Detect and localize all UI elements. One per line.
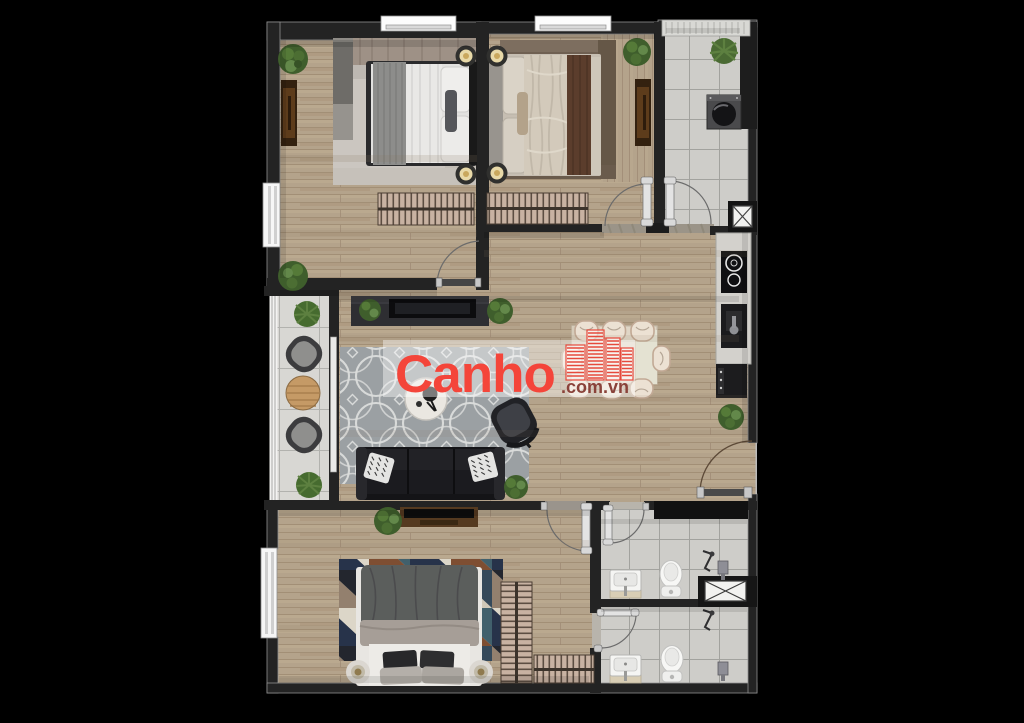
svg-text:.com.vn: .com.vn xyxy=(561,377,629,397)
svg-text:Canho: Canho xyxy=(395,345,555,404)
